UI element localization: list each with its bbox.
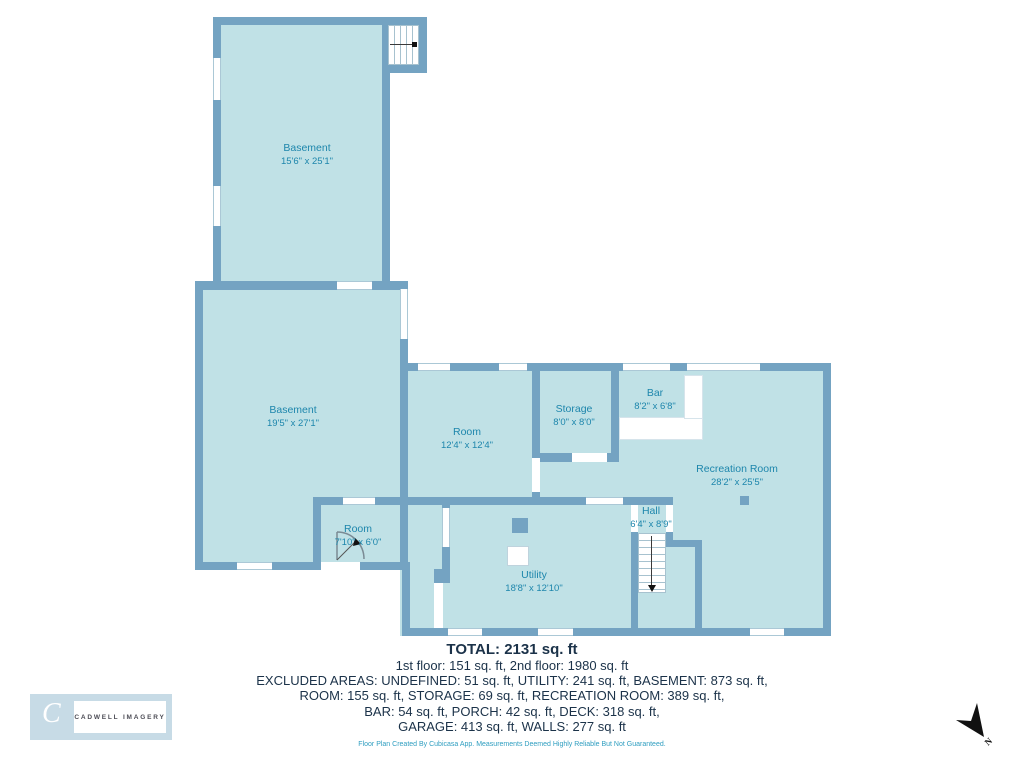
logo-name-box: CADWELL IMAGERY	[74, 701, 166, 733]
room-label-basement-main: Basement 19'5" x 27'1"	[267, 404, 319, 430]
logo-initial: C	[42, 698, 61, 730]
room-name: Recreation Room	[696, 463, 778, 476]
disclaimer-text: Floor Plan Created By Cubicasa App. Meas…	[0, 741, 1024, 748]
room-dims: 6'4" x 8'9"	[630, 518, 672, 531]
room-label-storage: Storage 8'0" x 8'0"	[553, 403, 595, 429]
bar-counter	[619, 417, 703, 440]
room-name: Room	[441, 426, 493, 439]
room-name: Hall	[630, 505, 672, 518]
wall	[402, 562, 410, 636]
staircase-hall	[638, 533, 666, 593]
room-dims: 7'10" x 6'0"	[335, 536, 382, 549]
wall	[611, 363, 619, 462]
room-name: Bar	[634, 387, 676, 400]
utility-fixture	[512, 518, 528, 533]
window	[213, 58, 221, 100]
window	[418, 363, 450, 371]
room-name: Storage	[553, 403, 595, 416]
column-marker	[740, 496, 749, 505]
wall	[195, 281, 408, 290]
window	[623, 363, 670, 371]
stair-arrow-end	[412, 42, 417, 47]
window	[586, 497, 623, 505]
room-label-hall: Hall 6'4" x 8'9"	[630, 505, 672, 531]
room-dims: 12'4" x 12'4"	[441, 439, 493, 452]
window	[213, 186, 221, 226]
room-name: Utility	[505, 569, 562, 582]
north-label: N	[983, 735, 995, 747]
window	[687, 363, 760, 371]
window	[750, 628, 784, 636]
room-label-recreation: Recreation Room 28'2" x 25'5"	[696, 463, 778, 489]
room-dims: 15'6" x 25'1"	[281, 155, 333, 168]
window	[442, 508, 450, 547]
bar-counter	[684, 375, 703, 419]
floor-areas-text: 1st floor: 151 sq. ft, 2nd floor: 1980 s…	[0, 658, 1024, 673]
stair-arrow-end	[648, 585, 656, 592]
window	[448, 628, 482, 636]
room-label-room-small: Room 7'10" x 6'0"	[335, 523, 382, 549]
excluded-areas-text: EXCLUDED AREAS: UNDEFINED: 51 sq. ft, UT…	[0, 673, 1024, 688]
wall	[213, 17, 427, 25]
total-area-text: TOTAL: 2131 sq. ft	[0, 641, 1024, 658]
room-name: Room	[335, 523, 382, 536]
room-label-utility: Utility 18'8" x 12'10"	[505, 569, 562, 595]
room-label-basement-upper: Basement 15'6" x 25'1"	[281, 142, 333, 168]
window	[237, 562, 272, 570]
room-dims: 19'5" x 27'1"	[267, 417, 319, 430]
room-label-bar: Bar 8'2" x 6'8"	[634, 387, 676, 413]
door-opening	[572, 453, 607, 462]
window	[499, 363, 527, 371]
wall	[388, 65, 427, 73]
room-dims: 8'2" x 6'8"	[634, 400, 676, 413]
wall	[195, 281, 203, 570]
room-name: Basement	[267, 404, 319, 417]
window	[538, 628, 573, 636]
room-name: Basement	[281, 142, 333, 155]
room-dims: 8'0" x 8'0"	[553, 416, 595, 429]
wall	[823, 363, 831, 636]
room-dims: 18'8" x 12'10"	[505, 582, 562, 595]
logo-name: CADWELL IMAGERY	[74, 714, 165, 721]
stair-direction-arrow	[651, 536, 652, 586]
window	[400, 289, 408, 339]
door-opening	[532, 458, 540, 492]
wall	[195, 562, 408, 570]
stair-direction-arrow	[390, 44, 414, 45]
door-opening	[434, 583, 443, 628]
wall	[434, 569, 443, 583]
window	[337, 281, 372, 290]
room-dims: 28'2" x 25'5"	[696, 476, 778, 489]
utility-fixture	[507, 546, 529, 566]
wall	[695, 540, 702, 636]
floor-plan-canvas: Basement 15'6" x 25'1" Basement 19'5" x …	[0, 0, 1024, 768]
window	[343, 497, 375, 505]
cadwell-imagery-logo: C CADWELL IMAGERY	[30, 694, 172, 740]
room-label-room: Room 12'4" x 12'4"	[441, 426, 493, 452]
north-arrow-icon: N	[948, 698, 1004, 754]
wall	[313, 497, 321, 570]
